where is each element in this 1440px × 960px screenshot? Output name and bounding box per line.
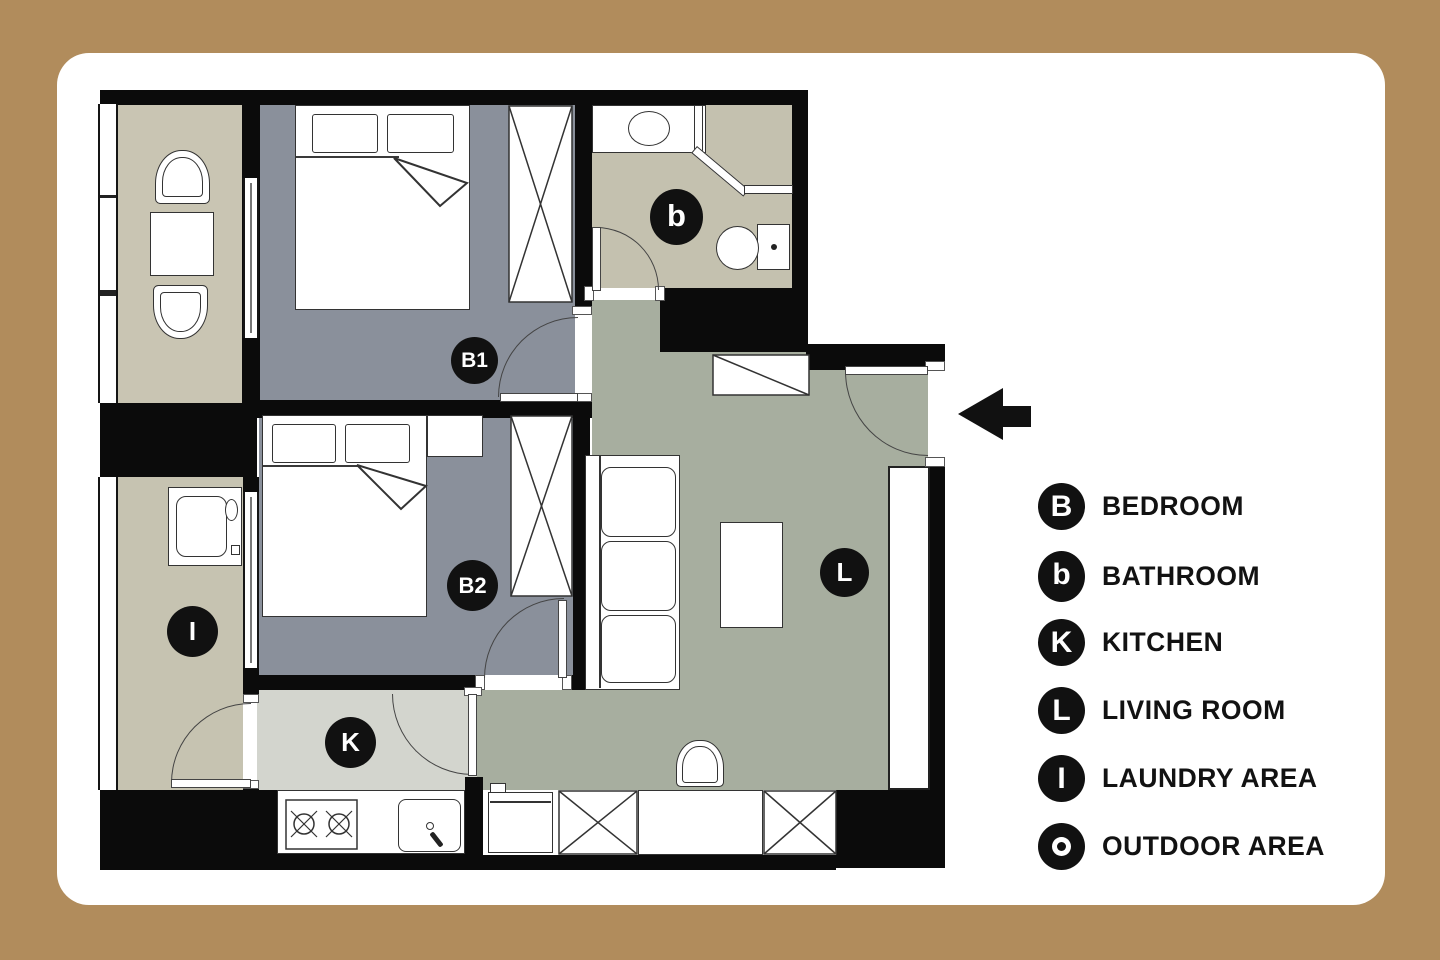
legend-item-outdoor-area: OUTDOOR AREA bbox=[1038, 823, 1325, 870]
legend-label: OUTDOOR AREA bbox=[1102, 831, 1325, 862]
outdoor-target-dot bbox=[1057, 842, 1066, 851]
window-mullion bbox=[100, 290, 116, 296]
sofa-cushion bbox=[601, 467, 676, 537]
wall-bathroom-bottom-corner bbox=[660, 288, 808, 352]
coffee-table bbox=[720, 522, 783, 628]
kitchen-legend-icon: K bbox=[1038, 619, 1085, 666]
bedroom-legend-icon: B bbox=[1038, 483, 1085, 530]
wall-bottom-left-block bbox=[100, 790, 277, 870]
window-mullion bbox=[100, 195, 116, 198]
window-outdoor-left bbox=[98, 104, 118, 403]
sink-drain bbox=[426, 822, 434, 830]
sink-basin bbox=[628, 111, 670, 146]
legend-label: KITCHEN bbox=[1102, 627, 1223, 658]
room-label-living-room: L bbox=[820, 548, 869, 597]
entry-arrow-icon bbox=[958, 388, 1003, 440]
room-label-bathroom: b bbox=[650, 189, 703, 245]
pillow bbox=[272, 424, 336, 463]
legend-label: LIVING ROOM bbox=[1102, 695, 1286, 726]
toilet-flush-button bbox=[771, 244, 777, 250]
door-leaf-kitchen bbox=[468, 694, 477, 776]
sofa-cushion bbox=[601, 615, 676, 683]
living-room-legend-icon: L bbox=[1038, 687, 1085, 734]
legend-label: LAUNDRY AREA bbox=[1102, 763, 1318, 794]
washing-machine-knob bbox=[225, 499, 238, 521]
wall-mid-left-block bbox=[100, 403, 257, 477]
armchair-inner bbox=[682, 746, 718, 783]
closet-bedroom1 bbox=[508, 105, 573, 303]
legend-label: BEDROOM bbox=[1102, 491, 1244, 522]
fridge-handle bbox=[490, 783, 506, 793]
room-label-bedroom2: B2 bbox=[447, 560, 498, 611]
room-label-laundry: I bbox=[167, 606, 218, 657]
outdoor-chair-inner bbox=[162, 157, 203, 197]
door-leaf-laundry bbox=[171, 779, 251, 788]
door-jamb bbox=[243, 694, 259, 703]
pillow bbox=[312, 114, 378, 153]
door-leaf-entry bbox=[845, 366, 928, 375]
blanket-line bbox=[263, 465, 359, 467]
floor-living-room bbox=[592, 300, 660, 355]
legend-item-kitchen: K KITCHEN bbox=[1038, 619, 1223, 666]
pillow bbox=[387, 114, 454, 153]
window-glass-line bbox=[250, 497, 252, 663]
door-leaf-bedroom2 bbox=[558, 600, 567, 678]
washing-machine-door bbox=[176, 496, 227, 557]
bathroom-legend-icon: b bbox=[1038, 551, 1085, 602]
wall-bottom-right-block bbox=[836, 790, 945, 868]
closet-bedroom2 bbox=[510, 415, 573, 597]
toilet-bowl bbox=[716, 226, 759, 270]
window-glass-line bbox=[250, 183, 252, 333]
door-jamb bbox=[925, 361, 945, 371]
cabinet-crossed bbox=[558, 790, 638, 855]
room-label-kitchen: K bbox=[325, 717, 376, 768]
wall-counter-divider bbox=[465, 777, 483, 870]
door-leaf-bedroom1 bbox=[500, 393, 578, 402]
blanket-line bbox=[296, 156, 399, 158]
outdoor-target-icon bbox=[1038, 823, 1085, 870]
wall-bottom-under-cabinets bbox=[483, 855, 836, 870]
wall-bedroom2-bottom bbox=[245, 675, 483, 690]
wall-laundry-kitchen-upper bbox=[243, 477, 259, 492]
wall-right-lower bbox=[928, 460, 945, 790]
cabinet-crossed bbox=[763, 790, 837, 855]
legend-item-laundry-area: I LAUNDRY AREA bbox=[1038, 755, 1318, 802]
legend-item-bathroom: b BATHROOM bbox=[1038, 551, 1260, 602]
stove bbox=[285, 799, 358, 850]
door-jamb bbox=[925, 457, 945, 467]
wall-bedroom1-right bbox=[575, 105, 592, 315]
fridge-line bbox=[490, 801, 551, 803]
legend-label: BATHROOM bbox=[1102, 561, 1260, 592]
blanket-fold bbox=[388, 152, 472, 210]
room-label-bedroom1: B1 bbox=[451, 337, 498, 384]
outdoor-table bbox=[150, 212, 214, 276]
outdoor-target-ring bbox=[1052, 837, 1071, 856]
door-leaf-bathroom bbox=[592, 227, 601, 291]
door-jamb bbox=[572, 306, 592, 315]
cabinet-plain bbox=[638, 790, 763, 855]
legend-item-living-room: L LIVING ROOM bbox=[1038, 687, 1286, 734]
shower-glass bbox=[694, 105, 703, 152]
wall-bottom-under-counter bbox=[277, 853, 465, 870]
washing-machine-detail bbox=[231, 545, 240, 555]
window-laundry-left bbox=[98, 477, 118, 790]
sofa-cushion bbox=[601, 541, 676, 611]
entry-arrow-icon bbox=[1002, 406, 1031, 427]
legend-item-bedroom: B BEDROOM bbox=[1038, 483, 1244, 530]
blanket-fold bbox=[352, 458, 432, 514]
window-living-right bbox=[888, 466, 930, 790]
wall-top bbox=[100, 90, 806, 105]
shoe-cabinet bbox=[712, 354, 810, 396]
shower-glass bbox=[744, 185, 793, 194]
nightstand bbox=[427, 415, 483, 457]
poster: B1 b B2 L I K B BEDROOM b BATHROOM K KIT… bbox=[0, 0, 1440, 960]
laundry-legend-icon: I bbox=[1038, 755, 1085, 802]
